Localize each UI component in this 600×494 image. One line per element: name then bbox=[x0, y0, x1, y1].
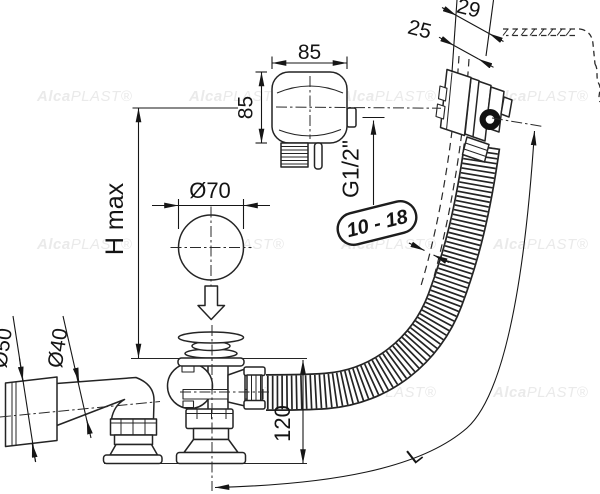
elbow-base bbox=[104, 455, 163, 464]
dimension-overflow-depth: 29 25 bbox=[405, 0, 503, 72]
overflow-assembly bbox=[436, 70, 512, 163]
drawing-canvas: AlcaPLAST® AlcaPLAST® AlcaPLAST® AlcaPLA… bbox=[0, 0, 600, 494]
label-overflow-depth-wall: 25 bbox=[405, 16, 433, 44]
knob-pin bbox=[315, 143, 323, 169]
label-knob-width: 85 bbox=[298, 41, 321, 64]
drain-base bbox=[177, 453, 246, 464]
label-pipe-inner-diameter: Ø40 bbox=[44, 327, 73, 370]
dimension-knob-width: 85 bbox=[272, 41, 347, 69]
watermark-text: AlcaPLAST® bbox=[492, 236, 589, 253]
label-stopper-diameter: Ø70 bbox=[189, 178, 231, 203]
drain-flange bbox=[178, 358, 244, 366]
label-overflow-depth-total: 29 bbox=[454, 0, 482, 23]
dimension-knob-height: 85 bbox=[235, 72, 268, 143]
label-waste-height: 120 bbox=[270, 405, 295, 442]
label-thread-size: G1/2" bbox=[338, 140, 364, 198]
drain-assembly bbox=[168, 332, 266, 464]
stopper-ball: Ø70 bbox=[152, 178, 270, 289]
watermark-text: AlcaPLAST® bbox=[340, 88, 437, 105]
knob-side-nub bbox=[347, 108, 356, 127]
watermark-alca: Alca bbox=[36, 88, 71, 105]
technical-drawing: AlcaPLAST® AlcaPLAST® AlcaPLAST® AlcaPLA… bbox=[0, 0, 600, 494]
stopper-cap bbox=[179, 332, 244, 343]
insert-direction-arrow bbox=[198, 286, 225, 320]
watermark-text: AlcaPLAST® bbox=[36, 88, 133, 105]
watermark-text: AlcaPLAST® bbox=[492, 384, 589, 401]
label-pipe-outer-diameter: Ø50 bbox=[0, 327, 17, 370]
hose-union-nut bbox=[247, 375, 262, 401]
label-height-max: H max bbox=[101, 182, 129, 255]
watermark-plast: PLAST® bbox=[71, 88, 133, 105]
